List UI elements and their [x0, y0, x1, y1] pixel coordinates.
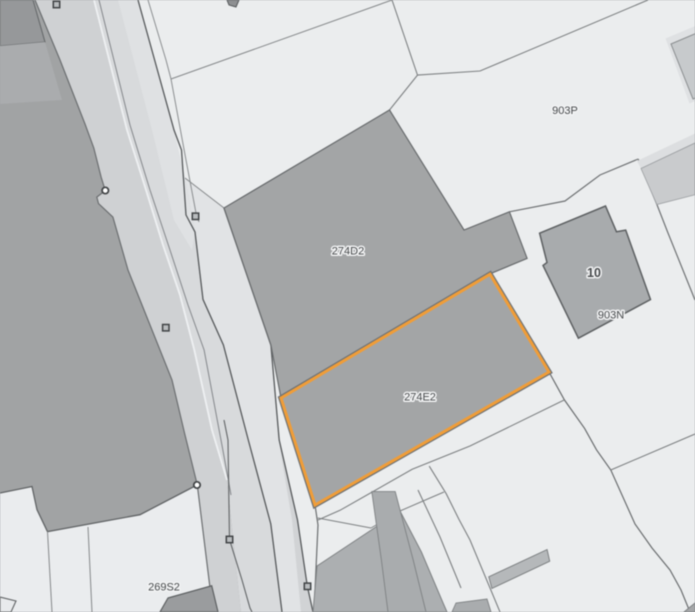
svg-text:269S2: 269S2	[148, 582, 180, 594]
svg-text:10: 10	[587, 266, 601, 280]
svg-text:274E2: 274E2	[404, 392, 436, 404]
svg-text:903N: 903N	[598, 310, 624, 322]
svg-text:903P: 903P	[552, 105, 578, 117]
svg-text:274D2: 274D2	[332, 246, 364, 258]
